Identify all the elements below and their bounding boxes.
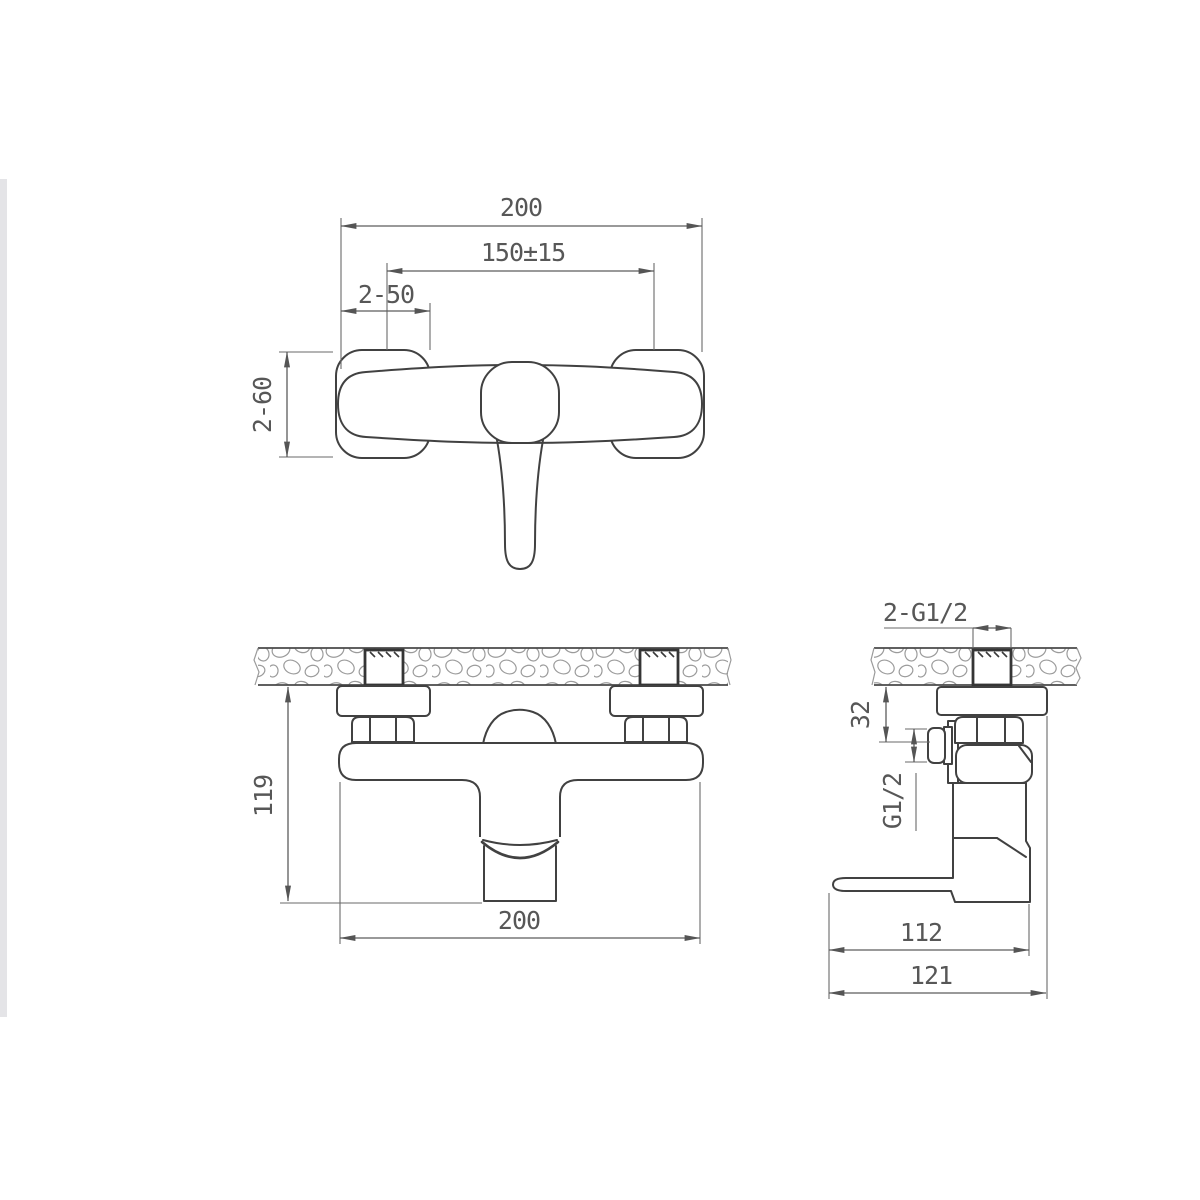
dim-label-depth-body: 112 — [900, 918, 942, 947]
outlet-nipple — [928, 728, 945, 763]
dim-label-wall-thread: 2-G1/2 — [883, 598, 967, 627]
dim-label-depth-total: 121 — [910, 961, 952, 990]
hex-nut-right — [625, 717, 687, 742]
mixer-body-installed — [339, 743, 703, 837]
wall-fitting-left — [365, 650, 403, 685]
side-view: 2-G1/2 32 G1/2 112 — [829, 598, 1081, 999]
dim-side-wall-thread: 2-G1/2 — [883, 598, 1011, 648]
dim-front-spacing: 150±15 — [387, 238, 654, 350]
dim-side-outlet-thread: G1/2 — [878, 729, 927, 831]
shower-outlet — [482, 840, 558, 901]
escutcheon-plate-side — [937, 687, 1047, 715]
installed-front-view: 119 200 — [249, 648, 731, 944]
dim-side-offset: 32 — [846, 687, 930, 742]
technical-drawing: 200 150±15 2-50 2-60 — [0, 0, 1200, 1200]
wall-fitting-side — [973, 650, 1011, 685]
dim-label-installed-height: 119 — [249, 775, 278, 817]
dim-label-front-flange-height: 2-60 — [248, 377, 277, 433]
cartridge-housing — [956, 745, 1032, 783]
hex-nut-left — [352, 717, 414, 742]
dim-label-offset: 32 — [846, 701, 875, 729]
body-and-handle-side — [833, 783, 1030, 902]
dim-front-flange-height: 2-60 — [248, 352, 333, 457]
dim-label-front-spacing: 150±15 — [481, 238, 565, 267]
handle-dome-front — [483, 710, 556, 744]
wall-fitting-right — [640, 650, 678, 685]
escutcheon-plate-left — [337, 686, 430, 716]
hex-nut-side — [955, 717, 1023, 743]
dim-front-flange-width: 2-50 — [341, 280, 430, 350]
dim-label-front-width: 200 — [500, 193, 542, 222]
handle-dome — [481, 362, 559, 443]
dim-label-front-flange-width: 2-50 — [358, 280, 414, 309]
handle-lever — [497, 440, 543, 569]
dim-label-installed-width: 200 — [498, 906, 540, 935]
front-view: 200 150±15 2-50 2-60 — [248, 193, 704, 569]
escutcheon-plate-right — [610, 686, 703, 716]
dim-label-outlet-thread: G1/2 — [878, 773, 907, 829]
drawing-canvas: 200 150±15 2-50 2-60 — [0, 0, 1200, 1200]
